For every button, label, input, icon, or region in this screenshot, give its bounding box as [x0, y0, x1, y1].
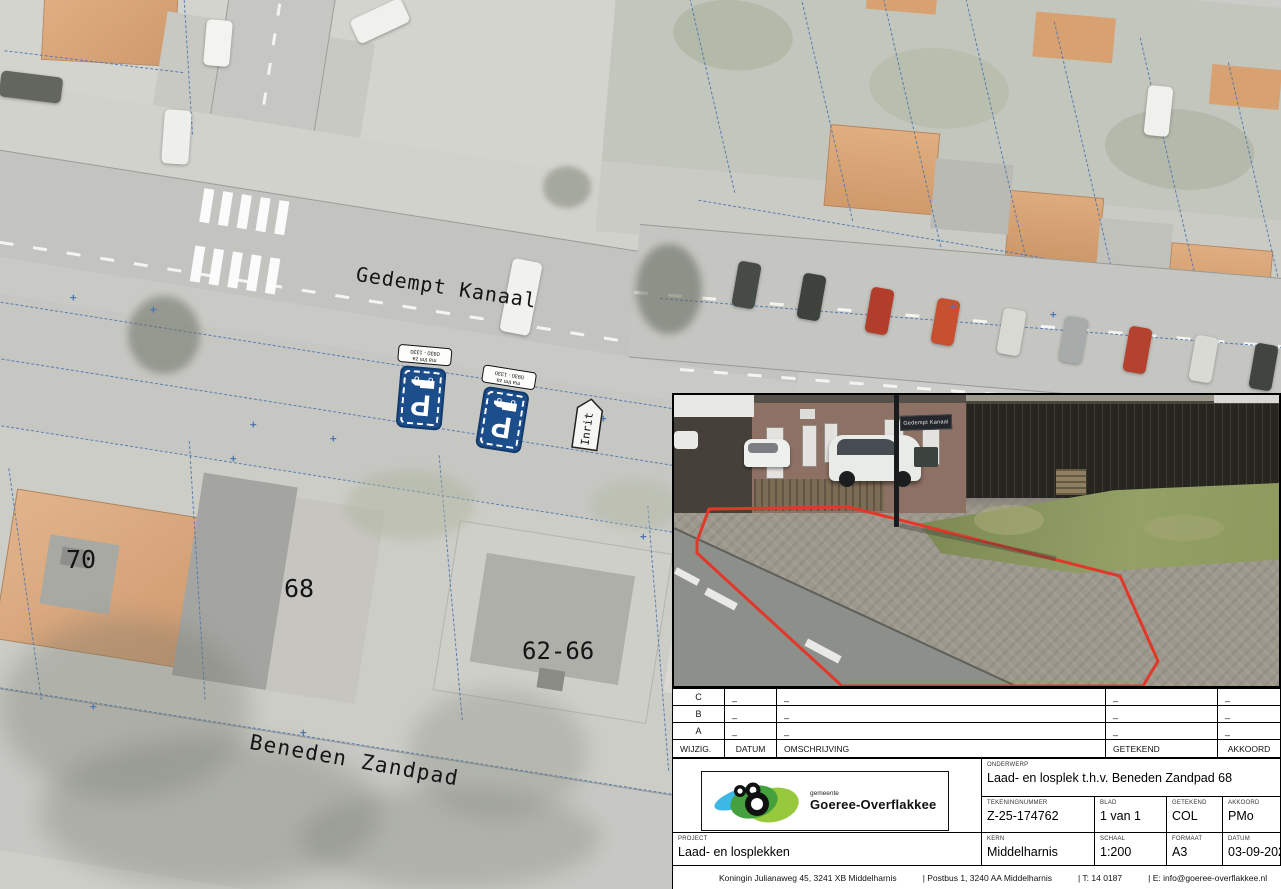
- schaal-cell: SCHAAL 1:200: [1094, 832, 1166, 867]
- revision-getekend: _: [1106, 706, 1218, 723]
- title-block: gemeente Goeree-Overflakkee PROJECT Laad…: [672, 758, 1281, 866]
- revision-getekend: _: [1106, 689, 1218, 706]
- street-photo-inset: Gedempt Kanaal: [672, 393, 1281, 688]
- revision-akkoord: _: [1218, 723, 1280, 740]
- akkoord-cell: AKKOORD PMo: [1222, 796, 1281, 832]
- lamp-pole: [894, 395, 899, 527]
- street-name-sign: Gedempt Kanaal: [900, 414, 952, 431]
- footer-address: Koningin Julianaweg 45, 3241 XB Middelha…: [719, 873, 897, 883]
- revision-code: A: [673, 723, 725, 740]
- parked-car: [203, 19, 233, 67]
- revision-datum: _: [725, 723, 777, 740]
- revision-omschrijving: _: [777, 706, 1106, 723]
- tree: [128, 296, 200, 374]
- formaat-cell: FORMAAT A3: [1166, 832, 1222, 867]
- footer-phone: | T: 14 0187: [1078, 873, 1122, 883]
- white-suv: [829, 435, 921, 481]
- datum-cell: DATUM 03-09-2025: [1222, 832, 1281, 867]
- revision-code: C: [673, 689, 725, 706]
- revision-getekend: _: [1106, 723, 1218, 740]
- logo-mark: [710, 778, 802, 824]
- footer-postbus: | Postbus 1, 3240 AA Middelharnis: [923, 873, 1052, 883]
- tree: [636, 244, 702, 334]
- header-akkoord: AKKOORD: [1218, 740, 1280, 757]
- logo-gemeente-text: gemeente: [810, 790, 936, 797]
- footer-email: | E: info@goeree-overflakkee.nl: [1148, 873, 1267, 883]
- revision-datum: _: [725, 706, 777, 723]
- revision-code: B: [673, 706, 725, 723]
- header-omschrijving: OMSCHRIJVING: [777, 740, 1106, 757]
- logo-name-text: Goeree-Overflakkee: [810, 797, 936, 812]
- revision-akkoord: _: [1218, 689, 1280, 706]
- parking-sign-time-plate: ma t/m za 0930 - 1330: [397, 344, 452, 367]
- getekend-cell: GETEKEND COL: [1166, 796, 1222, 832]
- onderwerp-cell: ONDERWERP Laad- en losplek t.h.v. Benede…: [981, 759, 1281, 796]
- parked-car: [1143, 85, 1173, 137]
- revision-omschrijving: _: [777, 723, 1106, 740]
- tekeningnummer-cell: TEKENINGNUMMER Z-25-174762: [981, 796, 1094, 832]
- revision-table: C _ _ _ _ B _ _ _ _ A _ _ _ _ WIJZIG. DA…: [672, 688, 1281, 758]
- drawing-sheet: + + + + + + + + + + + + Gedempt Kanaal B…: [0, 0, 1281, 889]
- house-number-68: 68: [284, 574, 314, 603]
- waste-bin: [914, 447, 938, 467]
- revision-omschrijving: _: [777, 689, 1106, 706]
- kern-cell: KERN Middelharnis: [981, 832, 1094, 867]
- house-number-70: 70: [66, 545, 96, 574]
- white-hatchback: [744, 439, 790, 467]
- revision-akkoord: _: [1218, 706, 1280, 723]
- header-datum: DATUM: [725, 740, 777, 757]
- parking-sign-loading-1: P ma t/m za 0930 - 1330: [392, 344, 451, 431]
- tree: [543, 166, 591, 208]
- house-number-62-66: 62-66: [522, 637, 594, 665]
- project-cell: PROJECT Laad- en losplekken: [673, 832, 981, 867]
- address-footer: Koningin Julianaweg 45, 3241 XB Middelha…: [672, 866, 1281, 889]
- revision-datum: _: [725, 689, 777, 706]
- parked-car: [161, 109, 192, 165]
- header-wijzig: WIJZIG.: [673, 740, 725, 757]
- blad-cell: BLAD 1 van 1: [1094, 796, 1166, 832]
- municipality-logo: gemeente Goeree-Overflakkee: [701, 771, 949, 831]
- header-getekend: GETEKEND: [1106, 740, 1218, 757]
